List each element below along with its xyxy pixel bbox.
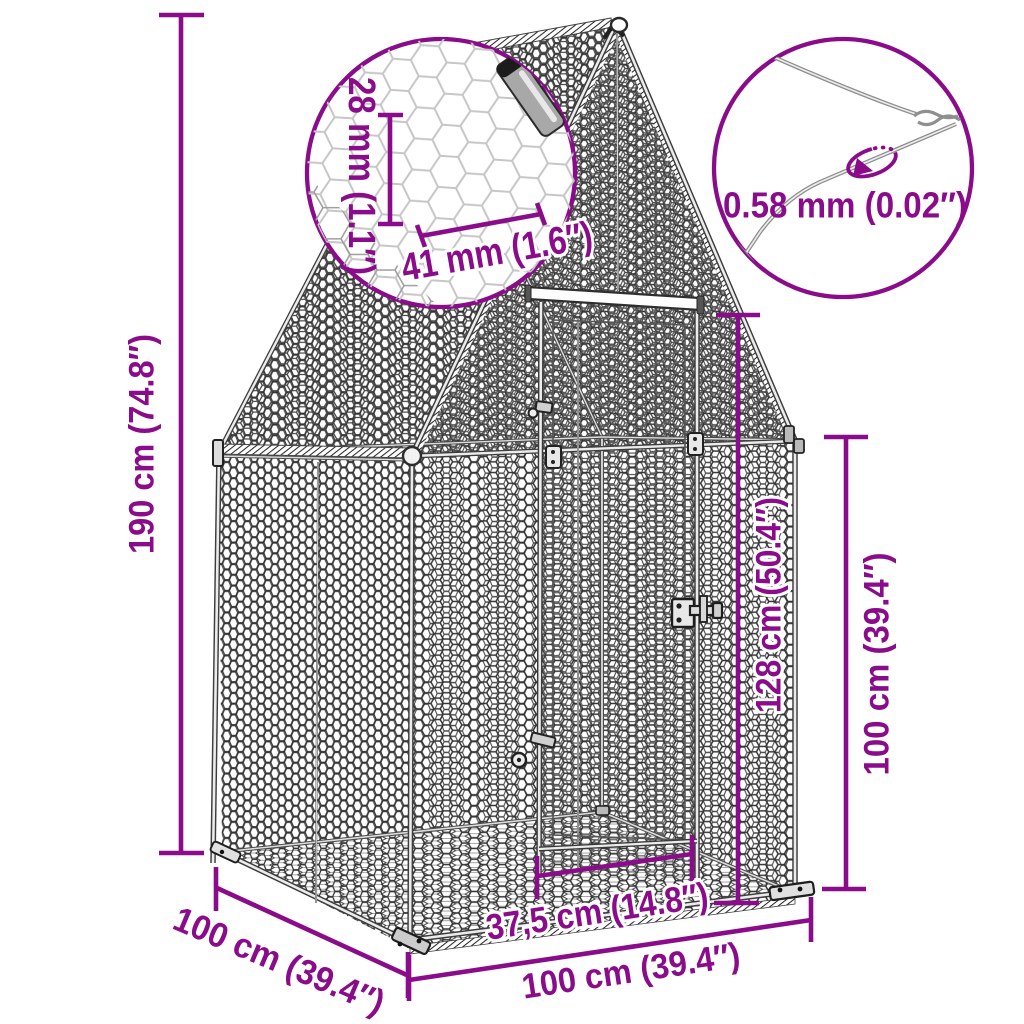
svg-text:190 cm (74.8″): 190 cm (74.8″) bbox=[123, 334, 162, 554]
svg-text:28 mm (1.1″): 28 mm (1.1″) bbox=[340, 77, 382, 275]
svg-text:100 cm (39.4″): 100 cm (39.4″) bbox=[858, 553, 897, 776]
svg-text:0.58 mm (0.02″): 0.58 mm (0.02″) bbox=[723, 185, 967, 226]
svg-text:128 cm (50.4″): 128 cm (50.4″) bbox=[750, 497, 789, 713]
